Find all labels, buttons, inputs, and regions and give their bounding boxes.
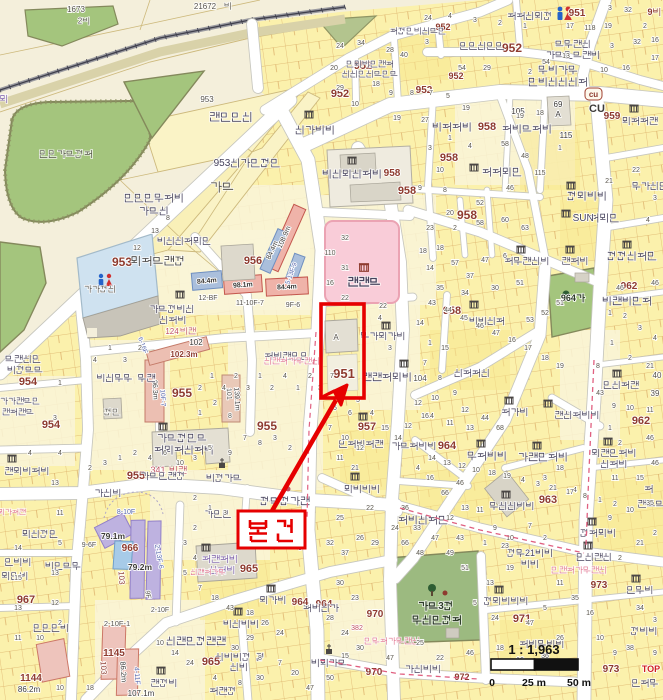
svg-text:2: 2 (643, 23, 647, 30)
svg-text:4: 4 (521, 477, 525, 484)
svg-text:1: 1 (210, 373, 214, 380)
svg-text:9F-6: 9F-6 (286, 302, 301, 309)
svg-text:10: 10 (626, 405, 634, 412)
svg-text:23: 23 (501, 543, 509, 550)
svg-text:2: 2 (288, 445, 292, 452)
svg-text:47: 47 (481, 257, 489, 264)
svg-text:2: 2 (308, 373, 312, 380)
svg-text:3: 3 (610, 43, 614, 50)
svg-text:26: 26 (556, 635, 564, 642)
svg-text:952: 952 (448, 71, 463, 81)
svg-text:5: 5 (58, 540, 62, 547)
svg-text:15: 15 (636, 475, 644, 482)
svg-text:19: 19 (556, 363, 564, 370)
svg-text:4-11F: 4-11F (132, 667, 140, 685)
svg-text:4: 4 (222, 385, 226, 392)
svg-text:11: 11 (556, 580, 563, 587)
svg-text:60: 60 (501, 217, 509, 224)
svg-text:2: 2 (618, 440, 622, 447)
svg-text:1: 1 (428, 340, 432, 347)
svg-text:40: 40 (653, 371, 662, 380)
svg-text:10: 10 (36, 635, 44, 642)
svg-text:5: 5 (183, 570, 187, 577)
svg-text:13: 13 (14, 605, 22, 612)
svg-text:14: 14 (416, 320, 424, 327)
svg-text:15: 15 (341, 653, 349, 660)
svg-text:107.1m: 107.1m (128, 689, 155, 698)
svg-text:21: 21 (646, 363, 654, 370)
svg-text:20: 20 (446, 210, 454, 217)
svg-text:43: 43 (428, 300, 436, 307)
svg-text:58: 58 (476, 220, 484, 227)
svg-text:4: 4 (448, 13, 452, 20)
svg-text:19: 19 (516, 113, 524, 120)
svg-text:11: 11 (611, 475, 618, 482)
svg-text:3: 3 (536, 481, 540, 488)
svg-text:2: 2 (453, 225, 457, 232)
svg-text:16: 16 (586, 610, 594, 617)
svg-text:13: 13 (51, 570, 59, 577)
svg-text:66: 66 (401, 540, 409, 547)
svg-text:51: 51 (556, 300, 564, 307)
svg-text:2: 2 (58, 620, 62, 627)
svg-text:43: 43 (226, 605, 234, 612)
svg-text:37: 37 (341, 550, 349, 557)
svg-text:3: 3 (246, 385, 250, 392)
svg-text:15: 15 (381, 425, 389, 432)
svg-text:10: 10 (431, 395, 439, 402)
svg-text:12: 12 (133, 245, 141, 252)
svg-text:9: 9 (389, 90, 393, 97)
svg-text:3: 3 (123, 357, 127, 364)
svg-text:68: 68 (496, 425, 504, 432)
svg-text:1: 1 (558, 145, 562, 152)
svg-text:3: 3 (223, 510, 227, 517)
svg-text:15: 15 (14, 575, 22, 582)
svg-text:20: 20 (330, 65, 338, 72)
svg-text:58: 58 (501, 141, 509, 148)
svg-text:18: 18 (496, 645, 504, 652)
svg-text:54: 54 (458, 65, 466, 72)
svg-text:43: 43 (456, 535, 464, 542)
svg-text:118: 118 (584, 25, 595, 32)
svg-text:30: 30 (491, 285, 499, 292)
svg-text:12: 12 (404, 423, 412, 430)
svg-text:12-BF: 12-BF (198, 295, 217, 302)
svg-text:955: 955 (172, 386, 192, 400)
svg-text:43: 43 (596, 390, 604, 397)
svg-text:24: 24 (186, 660, 194, 667)
svg-text:7: 7 (429, 90, 433, 97)
svg-text:12: 12 (461, 407, 469, 414)
svg-text:4: 4 (213, 675, 217, 682)
svg-text:1: 1 (118, 455, 122, 462)
svg-text:4: 4 (370, 410, 374, 417)
svg-text:1673: 1673 (67, 5, 85, 14)
svg-text:18: 18 (246, 610, 254, 617)
svg-text:13: 13 (151, 228, 159, 235)
svg-text:9: 9 (612, 403, 616, 410)
svg-text:21: 21 (351, 465, 359, 472)
svg-text:79.2m: 79.2m (128, 562, 153, 572)
svg-text:16: 16 (622, 65, 630, 72)
svg-text:22: 22 (341, 295, 349, 302)
svg-text:3: 3 (653, 617, 657, 624)
svg-text:9: 9 (653, 650, 657, 657)
svg-text:18: 18 (436, 245, 444, 252)
svg-text:22: 22 (379, 303, 387, 310)
svg-text:49: 49 (446, 550, 454, 557)
svg-text:31: 31 (341, 265, 349, 272)
svg-text:2-10F-1: 2-10F-1 (104, 619, 130, 628)
svg-text:2: 2 (498, 20, 502, 27)
svg-text:16: 16 (426, 475, 434, 482)
svg-text:10: 10 (626, 507, 634, 514)
svg-text:4: 4 (653, 335, 657, 342)
svg-text:23: 23 (426, 225, 434, 232)
svg-text:1: 1 (108, 345, 112, 352)
svg-text:1144: 1144 (20, 673, 42, 684)
svg-text:954: 954 (42, 419, 61, 431)
svg-text:46: 46 (651, 460, 659, 467)
svg-text:9: 9 (228, 450, 232, 457)
svg-text:7: 7 (278, 660, 282, 667)
svg-text:2: 2 (653, 530, 657, 537)
svg-text:14: 14 (426, 265, 434, 272)
svg-text:11: 11 (336, 455, 343, 462)
svg-text:16: 16 (651, 37, 659, 44)
svg-text:30: 30 (256, 675, 264, 682)
svg-text:1: 1 (598, 497, 602, 504)
svg-text:953: 953 (214, 158, 231, 169)
svg-text:50: 50 (326, 675, 334, 682)
svg-text:13: 13 (466, 425, 474, 432)
svg-text:19: 19 (506, 565, 514, 572)
svg-text:86.2m: 86.2m (18, 685, 41, 694)
svg-text:5: 5 (473, 600, 477, 607)
svg-text:18: 18 (419, 248, 427, 255)
svg-text:2: 2 (628, 355, 632, 362)
svg-text:7: 7 (528, 523, 532, 530)
svg-text:965: 965 (202, 656, 220, 668)
svg-text:20: 20 (291, 670, 299, 677)
svg-text:10: 10 (56, 685, 64, 692)
svg-text:13: 13 (461, 505, 469, 512)
svg-text:966: 966 (122, 543, 139, 554)
svg-text:11: 11 (476, 507, 483, 514)
svg-text:18: 18 (556, 465, 564, 472)
svg-text:SUN: SUN (573, 213, 594, 224)
svg-text:19: 19 (393, 115, 401, 122)
svg-text:17: 17 (524, 345, 532, 352)
svg-text:35: 35 (646, 500, 654, 507)
svg-text:4: 4 (378, 315, 382, 322)
svg-text:2: 2 (198, 385, 202, 392)
svg-text:115: 115 (560, 131, 573, 140)
svg-text:3: 3 (193, 455, 197, 462)
svg-text:TOP: TOP (642, 664, 660, 674)
svg-text:13: 13 (486, 580, 494, 587)
svg-text:23: 23 (351, 595, 359, 602)
svg-text:25: 25 (416, 640, 424, 647)
svg-text:6: 6 (348, 410, 352, 417)
svg-text:12: 12 (51, 600, 59, 607)
svg-text:47: 47 (431, 535, 439, 542)
svg-text:33: 33 (413, 525, 421, 532)
svg-text:2: 2 (133, 450, 137, 457)
svg-text:964: 964 (438, 440, 457, 452)
svg-text:2: 2 (193, 525, 197, 532)
svg-text:35: 35 (436, 285, 444, 292)
svg-text:958: 958 (440, 152, 458, 164)
svg-text:13: 13 (51, 480, 59, 487)
svg-text:8: 8 (228, 413, 232, 420)
svg-text:47: 47 (386, 655, 394, 662)
svg-text:2: 2 (88, 465, 92, 472)
svg-text:44: 44 (481, 415, 489, 422)
svg-text:1: 1 (523, 23, 527, 30)
svg-text:18: 18 (541, 355, 549, 362)
svg-text:25: 25 (336, 515, 344, 522)
svg-text:103: 103 (117, 571, 127, 585)
svg-text:30: 30 (356, 645, 364, 652)
svg-text:34: 34 (357, 40, 365, 47)
svg-text:38: 38 (626, 645, 634, 652)
svg-text:9F: 9F (143, 590, 151, 599)
svg-text:28: 28 (386, 47, 394, 54)
svg-text:102: 102 (189, 338, 203, 347)
svg-text:1: 1 (198, 410, 202, 417)
svg-text:382: 382 (351, 625, 363, 632)
svg-text:6: 6 (503, 253, 507, 260)
svg-text:8: 8 (583, 493, 587, 500)
svg-text:4: 4 (93, 357, 97, 364)
svg-text:964: 964 (292, 597, 309, 608)
svg-text:10: 10 (156, 640, 164, 647)
svg-text:9: 9 (418, 185, 422, 192)
svg-text:3: 3 (53, 415, 57, 422)
svg-text:40: 40 (400, 52, 408, 59)
svg-text:32: 32 (341, 235, 349, 242)
svg-text:5: 5 (543, 605, 547, 612)
svg-text:11: 11 (56, 510, 63, 517)
svg-text:32: 32 (624, 7, 632, 14)
svg-text:115: 115 (534, 170, 545, 177)
svg-text:5: 5 (446, 93, 450, 100)
svg-text:46: 46 (466, 650, 474, 657)
svg-text:8: 8 (438, 375, 442, 382)
svg-text:8-10F: 8-10F (117, 509, 135, 516)
svg-text:46: 46 (456, 480, 464, 487)
svg-text:29: 29 (371, 540, 379, 547)
svg-text:2: 2 (213, 400, 217, 407)
svg-text:21: 21 (605, 178, 613, 185)
svg-text:29: 29 (246, 635, 254, 642)
svg-text:30: 30 (336, 580, 344, 587)
svg-text:2: 2 (613, 501, 617, 508)
svg-text:18: 18 (86, 685, 94, 692)
svg-text:2: 2 (138, 345, 142, 352)
svg-text:98.1m: 98.1m (233, 281, 253, 289)
svg-text:10: 10 (472, 467, 480, 474)
svg-text:10: 10 (596, 635, 604, 642)
svg-text:955: 955 (257, 419, 277, 433)
svg-text:14: 14 (394, 435, 402, 442)
svg-text:46: 46 (506, 185, 514, 192)
svg-text:14: 14 (428, 455, 436, 462)
svg-text:9: 9 (647, 7, 652, 17)
svg-text:79.1m: 79.1m (101, 531, 126, 541)
svg-text:2: 2 (270, 385, 274, 392)
svg-text:46: 46 (646, 435, 654, 442)
svg-text:52: 52 (541, 310, 549, 317)
svg-text:3: 3 (183, 540, 187, 547)
svg-text:10: 10 (600, 67, 608, 74)
svg-text:1: 1 (296, 385, 300, 392)
svg-text:22: 22 (632, 167, 640, 174)
svg-text:14: 14 (14, 545, 22, 552)
svg-text:4: 4 (148, 455, 152, 462)
svg-text:10: 10 (341, 435, 349, 442)
svg-text:21: 21 (549, 485, 557, 492)
svg-text:962: 962 (632, 415, 650, 427)
svg-text:7: 7 (198, 585, 202, 592)
svg-text:2: 2 (234, 373, 238, 380)
svg-text:0: 0 (489, 677, 495, 689)
svg-text:10: 10 (436, 167, 444, 174)
svg-text:18: 18 (488, 470, 496, 477)
svg-text:7: 7 (243, 435, 247, 442)
svg-text:3: 3 (425, 39, 429, 46)
svg-text:10: 10 (176, 460, 184, 467)
svg-text:1: 1 (58, 380, 62, 387)
svg-text:3: 3 (388, 345, 392, 352)
svg-text:66: 66 (441, 490, 449, 497)
svg-text:48: 48 (521, 153, 529, 160)
svg-text:22: 22 (436, 655, 444, 662)
svg-text:25 m: 25 m (522, 677, 546, 689)
svg-text:86.2m: 86.2m (118, 661, 128, 682)
svg-text:958: 958 (457, 208, 477, 222)
svg-text:51: 51 (516, 280, 524, 287)
svg-text:3: 3 (543, 475, 547, 482)
svg-text:46: 46 (616, 285, 624, 292)
svg-text:970: 970 (367, 609, 384, 620)
svg-text:1: 1 (483, 540, 487, 547)
svg-text:973: 973 (591, 580, 608, 591)
svg-text:139.1m: 139.1m (232, 387, 240, 411)
svg-text:51: 51 (461, 565, 469, 572)
svg-text:24: 24 (391, 525, 399, 532)
svg-text:6: 6 (163, 450, 167, 457)
svg-text:46: 46 (476, 323, 484, 330)
svg-text:4: 4 (193, 555, 197, 562)
svg-text:11: 11 (446, 420, 453, 427)
svg-text:9: 9 (493, 525, 497, 532)
svg-text:22: 22 (366, 505, 374, 512)
svg-text:52: 52 (476, 200, 484, 207)
svg-text:957: 957 (358, 421, 376, 433)
svg-text:10: 10 (351, 101, 359, 108)
svg-text:11-10F-7: 11-10F-7 (236, 300, 264, 307)
svg-text:1: 1 (208, 505, 212, 512)
svg-text:1 : 1,963: 1 : 1,963 (508, 642, 559, 657)
svg-text:8: 8 (410, 90, 414, 97)
svg-text:CU: CU (589, 103, 605, 115)
svg-text:951: 951 (569, 8, 586, 19)
svg-text:44: 44 (444, 307, 452, 314)
svg-text:3: 3 (428, 145, 432, 152)
svg-text:96.3m: 96.3m (150, 380, 158, 400)
svg-text:24: 24 (336, 43, 344, 50)
svg-text:45: 45 (460, 315, 468, 322)
svg-text:1: 1 (448, 135, 452, 142)
svg-text:28: 28 (326, 615, 334, 622)
svg-text:16: 16 (508, 337, 516, 344)
svg-text:17: 17 (566, 489, 574, 496)
svg-text:19: 19 (604, 23, 612, 30)
svg-text:50 m: 50 m (567, 677, 591, 689)
svg-text:17: 17 (566, 23, 574, 30)
svg-text:17: 17 (651, 55, 659, 62)
svg-text:14: 14 (171, 650, 179, 657)
svg-text:2: 2 (543, 535, 547, 542)
svg-text:12: 12 (356, 445, 364, 452)
svg-text:3: 3 (653, 195, 657, 202)
svg-text:4: 4 (28, 450, 32, 457)
svg-text:5: 5 (208, 445, 212, 452)
svg-text:973: 973 (603, 664, 620, 675)
svg-text:3: 3 (273, 435, 277, 442)
svg-text:2: 2 (623, 313, 627, 320)
svg-text:103: 103 (99, 661, 109, 675)
svg-text:2: 2 (618, 555, 622, 562)
svg-text:11: 11 (14, 635, 21, 642)
svg-text:29: 29 (483, 65, 491, 72)
svg-text:1145: 1145 (103, 648, 125, 659)
svg-text:47: 47 (492, 330, 500, 337)
svg-text:4: 4 (283, 373, 287, 380)
svg-text:1: 1 (258, 373, 262, 380)
svg-text:956: 956 (244, 255, 262, 267)
svg-text:1: 1 (608, 425, 612, 432)
svg-text:19: 19 (503, 473, 511, 480)
svg-text:12: 12 (414, 400, 422, 407)
svg-text:24: 24 (276, 630, 284, 637)
svg-text:21: 21 (636, 540, 644, 547)
svg-text:4: 4 (646, 217, 650, 224)
svg-text:965: 965 (240, 563, 258, 575)
svg-text:47: 47 (306, 685, 314, 692)
svg-text:24: 24 (424, 15, 432, 22)
svg-text:A: A (555, 110, 561, 119)
svg-text:63: 63 (521, 225, 529, 232)
svg-text:963: 963 (539, 494, 557, 506)
svg-text:8: 8 (596, 363, 600, 370)
svg-text:959: 959 (604, 111, 621, 122)
svg-text:53: 53 (526, 317, 534, 324)
svg-text:34: 34 (636, 605, 644, 612)
svg-text:2: 2 (193, 495, 197, 502)
svg-text:3: 3 (103, 460, 107, 467)
svg-text:9: 9 (613, 650, 617, 657)
svg-text:24: 24 (491, 615, 499, 622)
svg-text:21672: 21672 (194, 2, 217, 11)
svg-text:2: 2 (528, 69, 532, 76)
svg-text:958: 958 (398, 185, 416, 197)
svg-text:8: 8 (166, 215, 170, 222)
svg-text:8: 8 (258, 655, 262, 662)
